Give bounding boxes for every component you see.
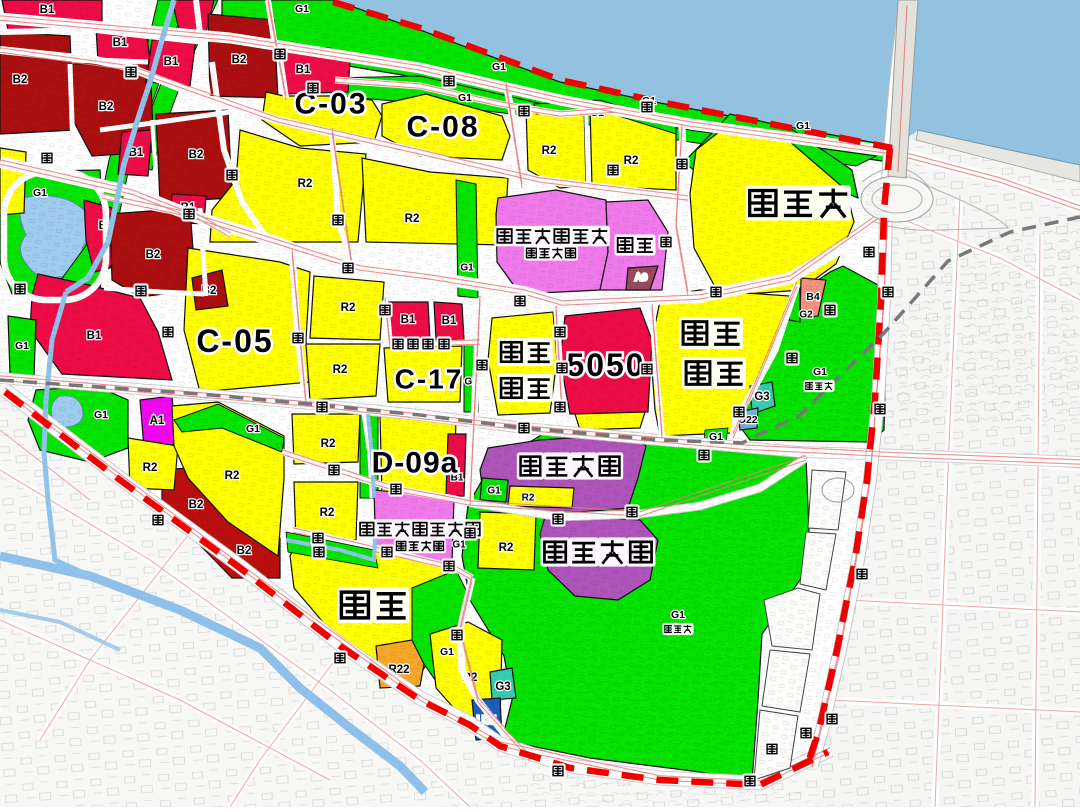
svg-text:G1: G1 bbox=[709, 431, 723, 443]
svg-text:G1: G1 bbox=[33, 187, 47, 199]
svg-text:G1: G1 bbox=[440, 646, 454, 658]
svg-text:G1: G1 bbox=[796, 120, 810, 132]
svg-text:G1: G1 bbox=[671, 609, 685, 621]
svg-text:G1: G1 bbox=[94, 409, 108, 421]
svg-text:G1: G1 bbox=[458, 92, 472, 104]
svg-text:C-05: C-05 bbox=[196, 323, 273, 359]
svg-text:C-17: C-17 bbox=[395, 364, 464, 395]
svg-text:C-08: C-08 bbox=[406, 111, 479, 144]
svg-text:5050: 5050 bbox=[566, 347, 645, 383]
svg-text:G1: G1 bbox=[813, 366, 827, 378]
svg-text:G1: G1 bbox=[492, 61, 506, 73]
svg-text:D-09a: D-09a bbox=[372, 447, 459, 480]
svg-text:G1: G1 bbox=[295, 3, 309, 15]
svg-text:G1: G1 bbox=[246, 423, 260, 435]
svg-text:A9: A9 bbox=[635, 273, 648, 284]
